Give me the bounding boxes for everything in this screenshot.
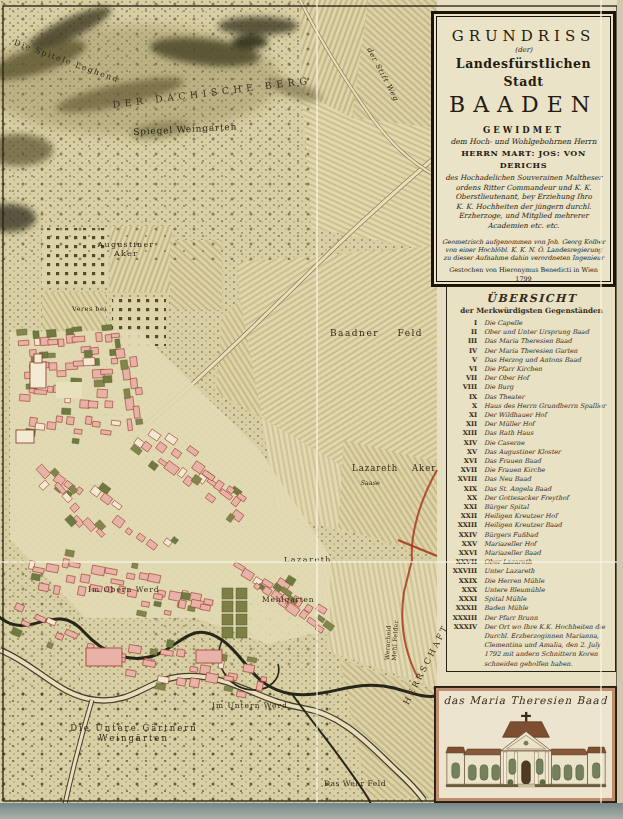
legend-numeral: XXII xyxy=(452,512,484,521)
dedication-line: des Hochadelichen Souverainen Maltheser xyxy=(442,173,605,183)
legend-item: VIDie Pfarr Kirchen xyxy=(452,365,611,374)
legend-item: VIIDer Ober Hof xyxy=(452,374,611,383)
legend-label: Das Maria Theresien Baad xyxy=(484,337,611,346)
dedication-line: Academien etc. etc. xyxy=(442,221,605,231)
legend-label: Das Neu Baad xyxy=(484,475,611,484)
legend-label: Das Frauen Baad xyxy=(484,457,611,466)
legend-label: Der Müller Hof xyxy=(484,420,611,429)
map-label-das-wehr-feld: Das Wehr Feld xyxy=(324,780,386,789)
legend-numeral: VII xyxy=(452,374,484,383)
imprint-line: Geometrisch aufgenommen von Joh. Georg K… xyxy=(442,238,605,246)
legend-item: XXDer Gottesacker Freythof xyxy=(452,494,611,503)
legend-numeral: XXIII xyxy=(452,521,484,530)
legend-label: Die Capelle xyxy=(484,319,611,328)
legend-label: Mariazeller Hof xyxy=(484,540,611,549)
legend-numeral: XIII xyxy=(452,429,484,438)
legend-label: Bürgers Fußbad xyxy=(484,531,611,540)
legend-numeral: XX xyxy=(452,494,484,503)
legend-label: Spital Mühle xyxy=(484,595,611,604)
legend-label: Die Herren Mühle xyxy=(484,577,611,586)
legend-subtitle: der Merkwürdigsten Gegenständen xyxy=(452,306,611,315)
dedicatee-name: HERRN MART: JOS: VON DERICHS xyxy=(442,147,605,171)
map-label-mehlgarten: Mehlgarten xyxy=(262,596,315,605)
dedication-heading: GEWIDMET xyxy=(442,124,605,137)
legend-numeral: XXVII xyxy=(452,558,484,567)
legend-item: XVIDas Frauen Baad xyxy=(452,457,611,466)
building-illustration xyxy=(441,708,611,792)
map-label-im-obern-werd: Im Obern Werd xyxy=(88,586,160,595)
legend-label: Das Augustiner Kloster xyxy=(484,448,611,457)
legend-numeral: V xyxy=(452,356,484,365)
legend-label: Das St. Angela Baad xyxy=(484,485,611,494)
legend-panel: ÜBERSICHT der Merkwürdigsten Gegenstände… xyxy=(446,286,616,672)
legend-item: XVIIIDas Neu Baad xyxy=(452,475,611,484)
map-label-weracheid: Weracheid Mehl Felder xyxy=(384,620,400,661)
legend-numeral: XIX xyxy=(452,485,484,494)
legend-item: XXXIIIDer Pfarr Brunn xyxy=(452,614,611,623)
inset-panel: das Maria Theresien Baad xyxy=(434,686,617,803)
legend-label: Die Caserne xyxy=(484,439,611,448)
legend-label: Der Ober Hof xyxy=(484,374,611,383)
legend-item: XXIIHeiligen Kreutzer Hof xyxy=(452,512,611,521)
inset-caption: das Maria Theresien Baad xyxy=(439,693,612,708)
legend-item: XXVIIOber Lazareth xyxy=(452,558,611,567)
legend-label: Haus des Herrn Grundherrn Spallier xyxy=(484,402,611,411)
legend-label: Der Pfarr Brunn xyxy=(484,614,611,623)
legend-label: Heiligen Kreutzer Hof xyxy=(484,512,611,521)
legend-item: XIXDas St. Angela Baad xyxy=(452,485,611,494)
legend-label: Der Gottesacker Freythof xyxy=(484,494,611,503)
map-title-stadt: Landesfürstlichen Stadt xyxy=(442,55,605,91)
legend-item: XVDas Augustiner Kloster xyxy=(452,448,611,457)
map-label-augustiner-aker: Augustiner Aker xyxy=(88,240,164,258)
legend-numeral: XVI xyxy=(452,457,484,466)
legend-numeral: XVII xyxy=(452,466,484,475)
legend-label: Die Frauen Kirche xyxy=(484,466,611,475)
legend-rows: IDie CapelleIIOber und Unter Ursprung Ba… xyxy=(452,319,611,669)
legend-numeral: XIV xyxy=(452,439,484,448)
legend-label: Das Herzog und Antons Baad xyxy=(484,356,611,365)
legend-numeral: XXVIII xyxy=(452,567,484,576)
legend-label: Der Ort wo Ihre K.K. Hochheiten die Durc… xyxy=(484,623,611,669)
legend-label: Bürger Spital xyxy=(484,503,611,512)
legend-item: IIIDas Maria Theresien Baad xyxy=(452,337,611,346)
legend-item: XXXIIBaden Mühle xyxy=(452,604,611,613)
dedication-line: K. K. Hochheiten der jüngern durchl. xyxy=(442,202,605,212)
dedication-line: ordens Ritter Commandeur und K. K. xyxy=(442,183,605,193)
legend-label: Das Rath Haus xyxy=(484,429,611,438)
legend-item: IXDas Theater xyxy=(452,393,611,402)
legend-numeral: XXX xyxy=(452,586,484,595)
legend-item: IVDer Maria Theresien Garten xyxy=(452,347,611,356)
inset-frame: das Maria Theresien Baad xyxy=(436,688,615,801)
legend-numeral: XXXIV xyxy=(452,623,484,669)
title-cartouche: GRUNDRISS (der) Landesfürstlichen Stadt … xyxy=(431,11,616,287)
legend-label: Die Pfarr Kirchen xyxy=(484,365,611,374)
map-label-lazareth: Lazareth xyxy=(284,555,332,564)
map-sheet: Die Spitele LeghendDER DACHISCHE BERGSpi… xyxy=(0,0,623,819)
legend-label: Die Burg xyxy=(484,383,611,392)
legend-item: XXVIMariazeller Baad xyxy=(452,549,611,558)
legend-numeral: II xyxy=(452,328,484,337)
legend-numeral: XXI xyxy=(452,503,484,512)
legend-label: Heiligen Kreutzer Baad xyxy=(484,521,611,530)
map-label-im-untern-werd: Im Untern Werd xyxy=(212,702,288,711)
sheet-edge xyxy=(617,0,623,819)
legend-numeral: XXV xyxy=(452,540,484,549)
legend-numeral: XV xyxy=(452,448,484,457)
legend-numeral: I xyxy=(452,319,484,328)
legend-numeral: X xyxy=(452,402,484,411)
legend-item: XHaus des Herrn Grundherrn Spallier xyxy=(452,402,611,411)
legend-item: XXXIVDer Ort wo Ihre K.K. Hochheiten die… xyxy=(452,623,611,669)
map-title-baaden: BAADEN xyxy=(442,91,605,119)
legend-item: XXVMariazeller Hof xyxy=(452,540,611,549)
legend-label: Ober Lazareth xyxy=(484,558,611,567)
map-label-veres-bei: Veres bei xyxy=(72,306,107,313)
legend-label: Unter Lazareth xyxy=(484,567,611,576)
imprint-line: von einer Hochlöbl. K. K. N. Ö. Landesre… xyxy=(442,246,605,254)
sheet-backing-strip xyxy=(0,803,623,819)
legend-item: VDas Herzog und Antons Baad xyxy=(452,356,611,365)
legend-numeral: III xyxy=(452,337,484,346)
map-label-lazareth-aker: Lazareth Aker xyxy=(352,464,436,474)
dedication-line: Oberstlieutenant, bey Erziehung Ihro xyxy=(442,192,605,202)
legend-item: IDie Capelle xyxy=(452,319,611,328)
legend-item: XIVDie Caserne xyxy=(452,439,611,448)
legend-label: Untere Bleumühle xyxy=(484,586,611,595)
legend-numeral: XI xyxy=(452,411,484,420)
legend-item: IIOber und Unter Ursprung Baad xyxy=(452,328,611,337)
legend-label: Baden Mühle xyxy=(484,604,611,613)
legend-label: Ober und Unter Ursprung Baad xyxy=(484,328,611,337)
legend-numeral: XXXII xyxy=(452,604,484,613)
legend-item: XIIIDas Rath Haus xyxy=(452,429,611,438)
legend-numeral: IV xyxy=(452,347,484,356)
legend-item: XXIVBürgers Fußbad xyxy=(452,531,611,540)
legend-numeral: XII xyxy=(452,420,484,429)
legend-label: Das Theater xyxy=(484,393,611,402)
legend-label: Der Wildhauer Hof xyxy=(484,411,611,420)
legend-item: XXIXDie Herren Mühle xyxy=(452,577,611,586)
map-title: GRUNDRISS xyxy=(442,26,605,46)
legend-numeral: VI xyxy=(452,365,484,374)
legend-numeral: XXVI xyxy=(452,549,484,558)
cartouche-inner: GRUNDRISS (der) Landesfürstlichen Stadt … xyxy=(436,16,611,282)
legend-item: XXXUntere Bleumühle xyxy=(452,586,611,595)
dedication-line: Erzherzoge, und Mitglied mehrerer xyxy=(442,211,605,221)
legend-numeral: XXIX xyxy=(452,577,484,586)
engraver-line: Gestochen von Hieronymus Benedicti in Wi… xyxy=(442,266,605,284)
legend-item: XXIBürger Spital xyxy=(452,503,611,512)
legend-item: XXVIIIUnter Lazareth xyxy=(452,567,611,576)
legend-numeral: XXXIII xyxy=(452,614,484,623)
legend-numeral: VIII xyxy=(452,383,484,392)
legend-title: ÜBERSICHT xyxy=(452,292,611,305)
legend-numeral: XXIV xyxy=(452,531,484,540)
legend-item: XIIDer Müller Hof xyxy=(452,420,611,429)
map-label-baadner-feld: Baadner Feld xyxy=(330,328,423,338)
imprint-line: zu dieser Aufnahme dahin verordneten Ing… xyxy=(442,254,605,262)
legend-item: XXIIIHeiligen Kreutzer Baad xyxy=(452,521,611,530)
legend-item: VIIIDie Burg xyxy=(452,383,611,392)
legend-item: XIDer Wildhauer Hof xyxy=(452,411,611,420)
dedicatee-intro: dem Hoch- und Wohlgebohrnen Herrn xyxy=(442,137,605,147)
map-title-der: (der) xyxy=(442,46,605,55)
legend-numeral: XVIII xyxy=(452,475,484,484)
legend-numeral: IX xyxy=(452,393,484,402)
legend-item: XVIIDie Frauen Kirche xyxy=(452,466,611,475)
map-label-untere-gaertnern: Die Untere Gärtnern Weingärten xyxy=(54,724,214,744)
legend-numeral: XXXI xyxy=(452,595,484,604)
legend-label: Der Maria Theresien Garten xyxy=(484,347,611,356)
legend-item: XXXISpital Mühle xyxy=(452,595,611,604)
map-label-saase: Saase xyxy=(360,480,379,487)
legend-label: Mariazeller Baad xyxy=(484,549,611,558)
